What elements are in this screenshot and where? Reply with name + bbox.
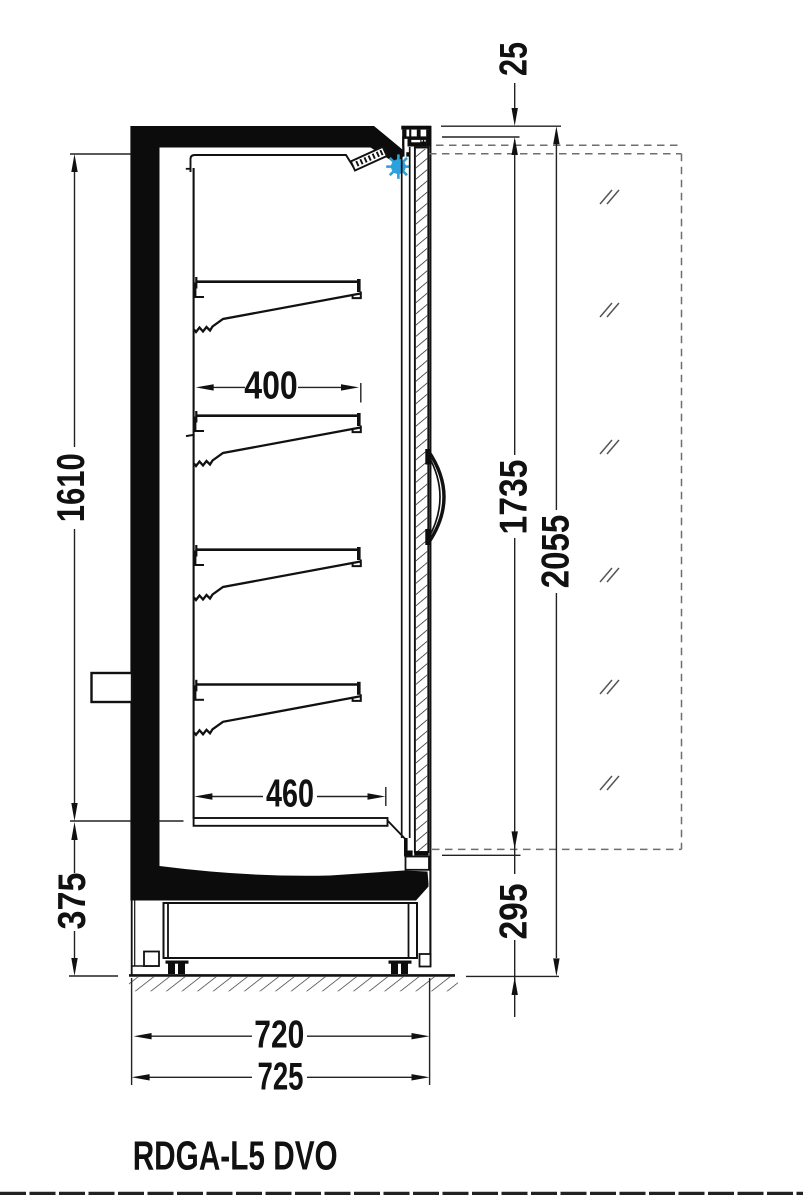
- svg-text:720: 720: [254, 1014, 304, 1057]
- svg-text:460: 460: [266, 773, 314, 816]
- svg-text:1735: 1735: [493, 460, 536, 535]
- svg-text:725: 725: [258, 1056, 304, 1099]
- svg-text:295: 295: [493, 884, 536, 940]
- svg-text:RDGA-L5 DVO: RDGA-L5 DVO: [133, 1133, 338, 1179]
- svg-text:2055: 2055: [534, 515, 577, 589]
- svg-text:400: 400: [244, 364, 298, 407]
- svg-text:1610: 1610: [50, 453, 93, 522]
- svg-text:375: 375: [51, 873, 94, 930]
- svg-text:25: 25: [493, 42, 536, 76]
